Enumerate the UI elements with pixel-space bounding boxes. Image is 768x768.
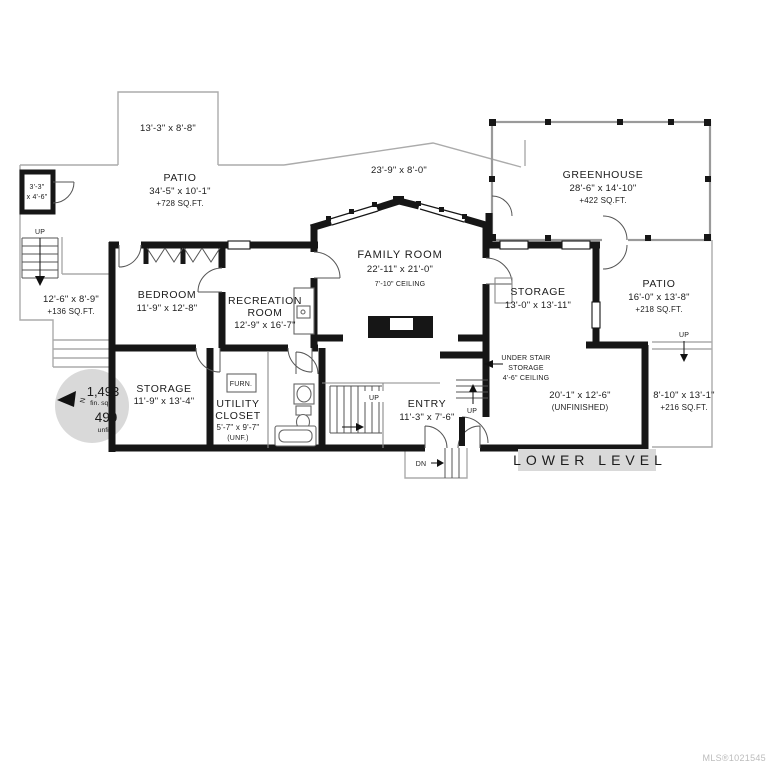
post <box>705 176 711 182</box>
label-deck-dims: 23'-9" x 8'-0" <box>371 165 427 176</box>
label-utility-name1: UTILITY <box>216 398 259 410</box>
post <box>372 202 377 207</box>
up-arrowhead-icon <box>469 384 477 392</box>
post <box>462 214 467 219</box>
level-badge-label: LOWER LEVEL <box>513 452 667 468</box>
right-arrowhead-icon <box>356 423 364 431</box>
label-storage-left-name: STORAGE <box>136 383 191 395</box>
label-patio-left-dims: 12'-6" x 8'-9" <box>43 294 99 305</box>
label-patio-left-area: +136 SQ.FT. <box>47 307 94 316</box>
label-greenhouse-name: GREENHOUSE <box>563 169 644 181</box>
label-family-name: FAMILY ROOM <box>357 249 442 261</box>
fireplace <box>368 316 433 338</box>
label-bedroom-name: BEDROOM <box>138 289 196 301</box>
patio-left-steps <box>53 340 114 367</box>
post <box>545 235 551 241</box>
post <box>349 209 354 214</box>
label-utility-dims: 5'-7" x 9'-7" <box>217 423 260 432</box>
window <box>228 241 250 249</box>
patio-left-railing <box>62 237 113 340</box>
doors <box>53 182 627 448</box>
label-patio-main-area: +728 SQ.FT. <box>156 199 203 208</box>
mls-number: MLS®1021545 <box>703 753 766 763</box>
label-patio-top-dims: 13'-3" x 8'-8" <box>140 123 196 134</box>
stair-up-label: UP <box>35 229 45 236</box>
label-greenhouse-area: +422 SQ.FT. <box>579 196 626 205</box>
label-recreation-name1: RECREATION <box>228 295 302 307</box>
door-leaf <box>459 417 465 446</box>
toilet-tank <box>296 406 311 415</box>
stair-treads <box>445 448 459 478</box>
post <box>668 119 674 125</box>
right-arrowhead-icon <box>437 459 444 467</box>
stairs-right-patio: UP <box>679 332 689 362</box>
level-badge: LOWER LEVEL <box>513 449 667 471</box>
label-greenhouse-dims: 28'-6" x 14'-10" <box>570 183 637 194</box>
post <box>617 119 623 125</box>
stair-dn-label: DN <box>416 461 427 468</box>
patio-right-outline <box>652 240 712 447</box>
landing-room-walls <box>22 172 53 212</box>
post <box>704 119 711 126</box>
bathroom-fixtures <box>275 384 316 446</box>
label-entry-dims: 11'-3" x 7'-6" <box>399 412 454 423</box>
label-storage-left-dims: 11'-9" x 13'-4" <box>134 396 195 407</box>
area-badge: N 1,493 fin. sq.ft. 490 unfin. <box>55 369 129 443</box>
window <box>500 241 528 249</box>
post <box>704 234 711 241</box>
label-landing-dims2: x 4'-6" <box>27 194 48 201</box>
greenhouse-structure <box>489 119 711 244</box>
label-entry-name: ENTRY <box>408 398 446 410</box>
floorplan-page: N 1,493 fin. sq.ft. 490 unfin. <box>0 0 768 768</box>
stair-up-label: UP <box>679 332 689 339</box>
down-arrowhead-icon <box>680 354 688 362</box>
door-arcs <box>53 182 627 448</box>
prow-peak-post <box>393 196 404 204</box>
greenhouse-walls <box>492 122 710 240</box>
label-understair-line2: STORAGE <box>508 365 544 372</box>
label-landing-dims1: 3'-3" <box>30 184 45 191</box>
label-family-dims: 22'-11" x 21'-0" <box>367 264 433 275</box>
knob <box>301 310 305 314</box>
label-patio-right-name: PATIO <box>643 278 676 290</box>
label-unfinished-note: (UNFINISHED) <box>552 403 609 412</box>
label-unfinished-dims: 20'-1" x 12'-6" <box>549 390 610 401</box>
post <box>416 201 421 206</box>
furnace-label: FURN. <box>230 381 252 388</box>
stair-up-label: UP <box>467 408 477 415</box>
label-recreation-name2: ROOM <box>247 307 282 319</box>
post <box>545 119 551 125</box>
floorplan-drawing: N 1,493 fin. sq.ft. 490 unfin. <box>0 0 768 768</box>
post <box>439 207 444 212</box>
window <box>592 302 600 328</box>
fireplace-notch <box>390 318 413 330</box>
label-understair-line3: 4'-6" CEILING <box>503 375 550 382</box>
stairs-left-exterior: UP <box>22 229 58 286</box>
label-patio-right-dims: 16'-0" x 13'-8" <box>628 292 689 303</box>
label-recreation-dims: 12'-9" x 16'-7" <box>234 320 295 331</box>
label-patio-right-area: +218 SQ.FT. <box>635 305 682 314</box>
label-bedroom-dims: 11'-9" x 12'-8" <box>137 303 198 314</box>
label-family-ceiling: 7'-10" CEILING <box>375 281 426 288</box>
post <box>326 216 331 221</box>
greenhouse-door-gap <box>602 236 628 244</box>
down-arrowhead-icon <box>35 276 45 286</box>
label-utility-note: (UNF.) <box>227 435 248 442</box>
bathtub-inner <box>279 430 312 442</box>
stair-up-label: UP <box>369 395 379 402</box>
label-storage-right-dims: 13'-0" x 13'-11" <box>505 300 571 311</box>
label-utility-name2: CLOSET <box>215 410 261 422</box>
label-storage-right-name: STORAGE <box>510 286 565 298</box>
patio-top-outline <box>20 92 525 167</box>
post <box>645 235 651 241</box>
window <box>562 241 590 249</box>
label-patio-lr-dims: 8'-10" x 13'-1" <box>653 390 714 401</box>
post <box>489 119 496 126</box>
sink-icon <box>297 386 311 402</box>
label-patio-main-dims: 34'-5" x 10'-1" <box>149 186 210 197</box>
label-understair-line1: UNDER STAIR <box>501 355 550 362</box>
post <box>489 176 495 182</box>
label-patio-main-name: PATIO <box>164 172 197 184</box>
stairs-entry-stoop: DN <box>416 448 459 478</box>
label-patio-lr-area: +216 SQ.FT. <box>660 403 707 412</box>
